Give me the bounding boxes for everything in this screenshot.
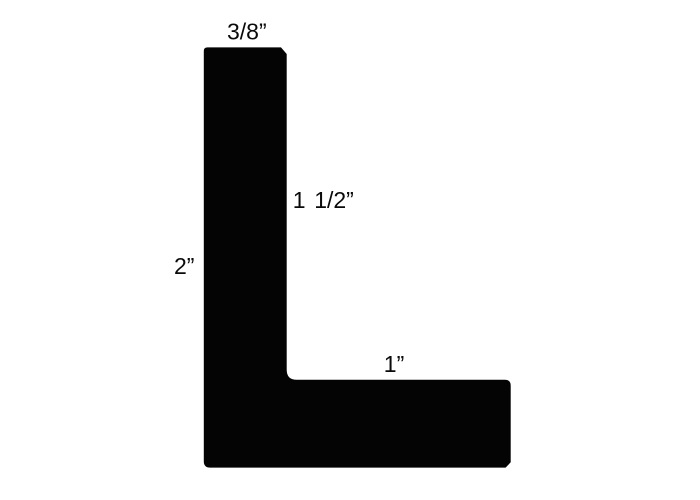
svg-text:1”: 1” bbox=[384, 351, 404, 377]
svg-text:1: 1 bbox=[293, 187, 306, 213]
svg-text:1/2”: 1/2” bbox=[314, 187, 354, 213]
svg-text:2”: 2” bbox=[174, 253, 194, 279]
svg-text:3/8”: 3/8” bbox=[227, 18, 267, 44]
